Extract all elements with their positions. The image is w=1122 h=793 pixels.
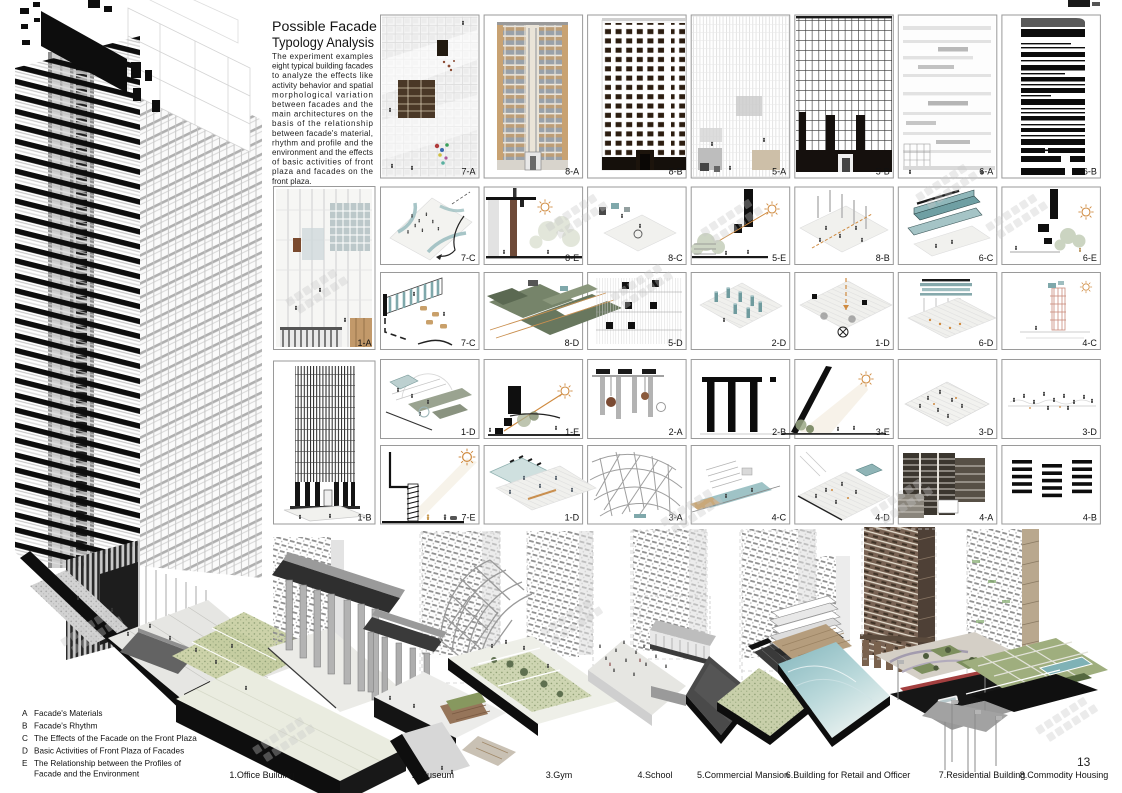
svg-text:1-B: 1-B	[357, 513, 371, 523]
svg-text:2.Museum: 2.Museum	[412, 770, 454, 780]
svg-text:to analyze the effects like: to analyze the effects like	[272, 71, 374, 80]
svg-text:rhythm and profile and the: rhythm and profile and the	[272, 138, 374, 147]
svg-text:6-A: 6-A	[979, 167, 993, 177]
svg-text:7-C: 7-C	[461, 253, 476, 263]
svg-text:between facade's material,: between facade's material,	[272, 129, 373, 138]
svg-text:Facade's Rhythm: Facade's Rhythm	[34, 722, 98, 731]
svg-text:between facades and the: between facades and the	[272, 100, 374, 109]
svg-text:5-A: 5-A	[772, 167, 786, 177]
svg-text:7.Residential Building: 7.Residential Building	[939, 770, 1026, 780]
svg-text:8-B: 8-B	[876, 253, 890, 263]
svg-text:basis of the relationship: basis of the relationship	[272, 119, 374, 128]
svg-text:6-E: 6-E	[1083, 253, 1097, 263]
svg-text:8-B: 8-B	[669, 167, 683, 177]
svg-text:1-A: 1-A	[357, 338, 371, 348]
svg-text:7-A: 7-A	[461, 167, 475, 177]
svg-text:1-D: 1-D	[461, 427, 476, 437]
svg-text:3.Gym: 3.Gym	[546, 770, 573, 780]
svg-text:5.Commercial Mansion: 5.Commercial Mansion	[697, 770, 789, 780]
svg-text:4-A: 4-A	[979, 513, 993, 523]
svg-text:Possible Facade: Possible Facade	[272, 19, 377, 35]
svg-text:3-D: 3-D	[1082, 427, 1097, 437]
svg-text:4-C: 4-C	[1082, 338, 1097, 348]
svg-text:A: A	[22, 709, 28, 718]
svg-text:5-E: 5-E	[772, 253, 786, 263]
svg-text:3-D: 3-D	[979, 427, 994, 437]
svg-text:6-C: 6-C	[979, 253, 994, 263]
svg-text:8-C: 8-C	[668, 253, 683, 263]
svg-text:2-D: 2-D	[772, 338, 787, 348]
svg-text:1-E: 1-E	[565, 427, 579, 437]
svg-text:6-B: 6-B	[1083, 167, 1097, 177]
svg-text:5-B: 5-B	[876, 167, 890, 177]
svg-text:7-E: 7-E	[461, 513, 475, 523]
svg-text:plaza and facades on the: plaza and facades on the	[272, 167, 374, 176]
svg-text:2-A: 2-A	[669, 427, 683, 437]
svg-text:of basic activities of front: of basic activities of front	[272, 158, 374, 167]
svg-text:1.Office Building: 1.Office Building	[229, 770, 294, 780]
svg-text:1-D: 1-D	[875, 338, 890, 348]
svg-text:5-D: 5-D	[668, 338, 683, 348]
svg-text:eight typical building facades: eight typical building facades	[272, 62, 373, 71]
svg-text:C: C	[22, 734, 28, 743]
svg-text:main architectures on the: main architectures on the	[272, 110, 374, 119]
svg-text:front plaza.: front plaza.	[272, 177, 312, 186]
svg-text:13: 13	[1077, 755, 1091, 769]
svg-text:4.School: 4.School	[637, 770, 672, 780]
svg-text:Typology Analysis: Typology Analysis	[272, 35, 374, 51]
svg-text:4-C: 4-C	[772, 513, 787, 523]
svg-text:3-E: 3-E	[876, 427, 890, 437]
svg-text:The experiment examples: The experiment examples	[272, 52, 373, 61]
svg-text:4-B: 4-B	[1083, 513, 1097, 523]
svg-text:The Effects of the Facade on t: The Effects of the Facade on the Front P…	[34, 734, 197, 743]
svg-text:The Relationship between the P: The Relationship between the Profiles of	[34, 759, 182, 768]
svg-text:2-B: 2-B	[772, 427, 786, 437]
svg-text:8-D: 8-D	[565, 338, 580, 348]
svg-text:B: B	[22, 722, 28, 731]
svg-text:6.Building for Retail and Offi: 6.Building for Retail and Officer	[786, 770, 910, 780]
svg-text:6-D: 6-D	[979, 338, 994, 348]
svg-text:activity behavior and spatial: activity behavior and spatial	[272, 81, 373, 90]
svg-text:D: D	[22, 747, 28, 756]
svg-text:Facade's Materials: Facade's Materials	[34, 709, 102, 718]
svg-text:7-C: 7-C	[461, 338, 476, 348]
svg-text:environment and the effects: environment and the effects	[272, 148, 373, 157]
svg-text:8-E: 8-E	[565, 253, 579, 263]
svg-text:E: E	[22, 759, 28, 768]
svg-text:Basic Activities of Front Plaz: Basic Activities of Front Plaza of Facad…	[34, 747, 184, 756]
svg-text:8-A: 8-A	[565, 167, 579, 177]
svg-text:morphological variation: morphological variation	[272, 90, 373, 99]
svg-text:Facade and the Environment: Facade and the Environment	[34, 770, 140, 779]
svg-text:8.Commodity Housing: 8.Commodity Housing	[1020, 770, 1109, 780]
svg-text:1-D: 1-D	[565, 513, 580, 523]
